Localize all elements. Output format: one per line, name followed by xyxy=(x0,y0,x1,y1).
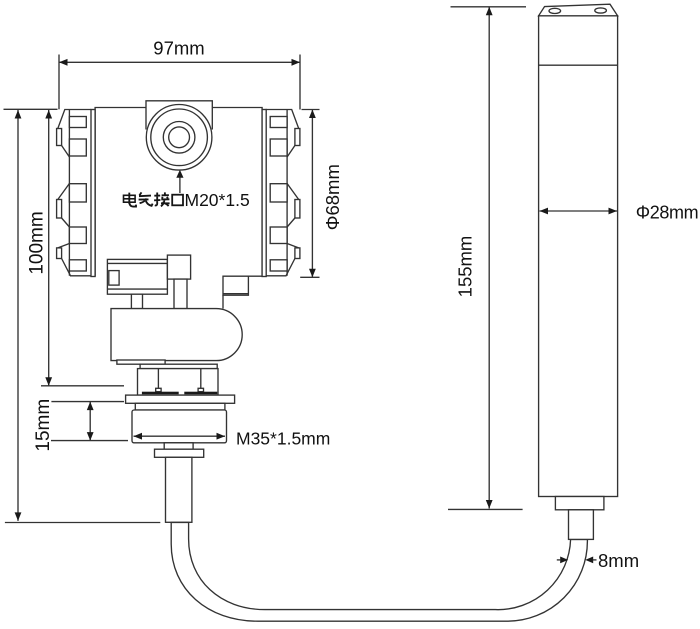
svg-text:Φ28mm: Φ28mm xyxy=(636,202,699,222)
svg-text:Φ68mm: Φ68mm xyxy=(322,164,343,230)
svg-text:M20*1.5: M20*1.5 xyxy=(185,190,250,210)
svg-text:8mm: 8mm xyxy=(598,550,639,571)
svg-text:155mm: 155mm xyxy=(454,236,475,298)
svg-text:M35*1.5mm: M35*1.5mm xyxy=(236,428,330,448)
svg-text:100mm: 100mm xyxy=(27,211,48,274)
svg-text:15mm: 15mm xyxy=(33,399,54,452)
svg-text:97mm: 97mm xyxy=(153,38,204,59)
